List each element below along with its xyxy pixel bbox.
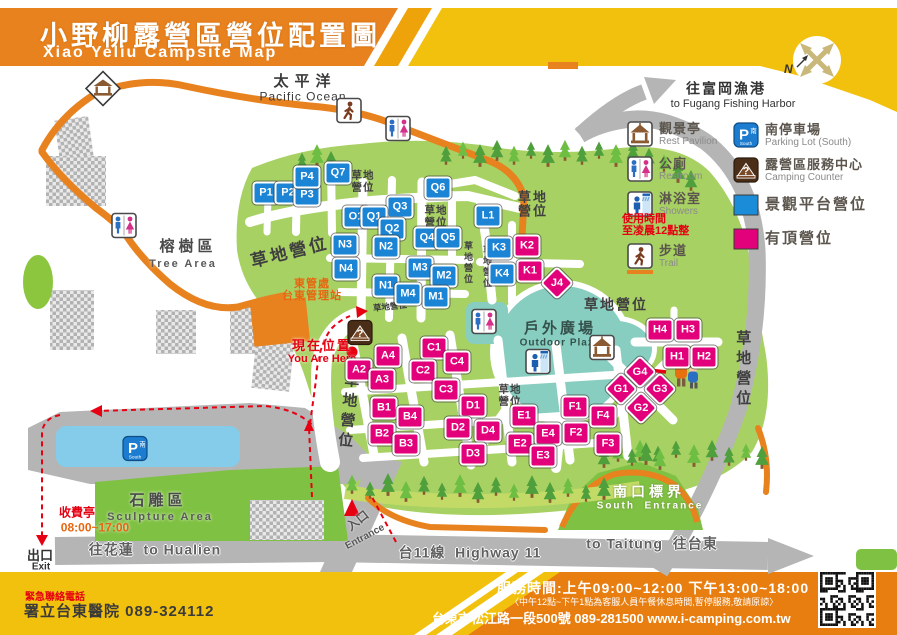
svg-text:South: South — [129, 455, 142, 461]
map-label: to Taitung 往台東 — [586, 536, 717, 551]
site-marker-q6: Q6 — [425, 177, 452, 200]
site-marker-c4: C4 — [444, 351, 471, 374]
map-label: 南口標界 — [613, 484, 685, 499]
svg-text:?: ? — [743, 166, 750, 178]
parking-lot-south — [56, 426, 240, 467]
restroom-icon — [111, 213, 137, 244]
restroom-icon — [471, 309, 497, 340]
lunch-break-note: 〈中午12點~下午1點為客服人員午餐休息時間,暫停服務,敬請原諒〉 — [510, 595, 778, 608]
legend-label-en: Restroom — [659, 171, 702, 182]
legend-item: 公廁Restroom — [627, 156, 702, 187]
pavilion-sign-icon — [81, 67, 125, 116]
trail-icon — [336, 98, 362, 129]
site-marker-l1: L1 — [475, 205, 502, 228]
svg-text:P: P — [739, 127, 749, 144]
legend-item: P南South南停車場Parking Lot (South) — [733, 122, 851, 153]
site-marker-n4: N4 — [333, 258, 360, 281]
svg-text:南: 南 — [139, 440, 146, 449]
map-label: 太平洋 — [273, 74, 336, 91]
map-label: Tree Area — [149, 258, 217, 270]
site-marker-b4: B4 — [397, 406, 424, 429]
site-marker-m4: M4 — [395, 283, 422, 306]
site-marker-e3: E3 — [530, 445, 557, 468]
qr-code — [818, 570, 876, 628]
site-marker-q5: Q5 — [435, 227, 462, 250]
site-marker-k2: K2 — [514, 235, 541, 258]
map-label: Pacific Ocean — [259, 90, 346, 103]
header-accent-dash — [548, 62, 578, 69]
map-label: 草地 營位 — [518, 191, 548, 220]
site-marker-h4: H4 — [647, 319, 674, 342]
site-marker-h3: H3 — [675, 319, 702, 342]
poster-subtitle: Xiao Yeliu Campsite Map — [43, 44, 277, 62]
counter-icon: ? — [347, 320, 373, 351]
site-marker-m2: M2 — [431, 265, 458, 288]
site-marker-f1: F1 — [562, 396, 589, 419]
address-phone-website: 台東市松江路一段500號 089-281500 www.i-camping.co… — [432, 608, 791, 627]
site-marker-a4: A4 — [375, 345, 402, 368]
map-label: 草地營位 — [462, 241, 472, 285]
site-marker-d1: D1 — [460, 395, 487, 418]
site-marker-e1: E1 — [511, 405, 538, 428]
legend-label-zh: 公廁 — [659, 156, 702, 171]
pavilion-icon — [589, 335, 615, 366]
svg-text:南: 南 — [750, 126, 757, 135]
site-marker-h2: H2 — [691, 346, 718, 369]
svg-text:South: South — [740, 141, 753, 147]
site-marker-m1: M1 — [423, 286, 450, 309]
legend-item: ?露營區服務中心Camping Counter — [733, 157, 863, 188]
site-marker-f4: F4 — [590, 405, 617, 428]
site-marker-b3: B3 — [393, 433, 420, 456]
site-marker-n2: N2 — [373, 236, 400, 259]
pink-site-swatch — [733, 228, 759, 255]
site-marker-h1: H1 — [664, 346, 691, 369]
restroom-icon — [385, 116, 411, 147]
map-label: 榕樹區 — [159, 239, 216, 256]
site-marker-f3: F3 — [595, 433, 622, 456]
shower-icon — [525, 349, 551, 380]
map-label: 往富岡漁港 — [686, 81, 766, 96]
counter-icon: ? — [733, 157, 759, 188]
green-patch — [856, 549, 897, 570]
site-marker-d4: D4 — [475, 420, 502, 443]
pavilion-icon — [627, 121, 653, 152]
svg-text:?: ? — [357, 328, 364, 340]
parking-icon: P南South — [122, 436, 148, 467]
map-label: 草地 營位 — [352, 170, 375, 193]
map-label: 石雕區 — [129, 493, 186, 510]
green-patch — [23, 255, 53, 309]
map-label: to Fugang Fishing Harbor — [671, 98, 796, 110]
svg-text:P: P — [128, 440, 138, 457]
site-marker-e4: E4 — [535, 423, 562, 446]
site-marker-q3: Q3 — [387, 196, 414, 219]
site-marker-c3: C3 — [433, 379, 460, 402]
hospital-phone: 署立台東醫院 089-324112 — [24, 600, 214, 621]
to-taitung-arrow — [768, 538, 814, 574]
site-marker-k4: K4 — [489, 263, 516, 286]
legend-label-zh: 露營區服務中心 — [765, 157, 863, 172]
legend-label-zh: 淋浴室 — [659, 191, 701, 206]
legend-label-en: Trail — [659, 258, 687, 269]
map-label: 草地 營位 — [425, 205, 448, 228]
sculpture-texture — [250, 500, 324, 540]
compass-north-label: N — [784, 62, 793, 76]
site-marker-d3: D3 — [460, 443, 487, 466]
site-marker-n3: N3 — [332, 234, 359, 257]
campsite-map-poster: 太平洋Pacific Ocean往富岡漁港to Fugang Fishing H… — [0, 0, 897, 635]
map-label: 戶外廣場 — [524, 321, 596, 338]
map-label: Exit — [32, 562, 50, 573]
legend-label-en: Rest Pavilion — [659, 136, 717, 147]
site-marker-p4: P4 — [294, 166, 321, 189]
site-marker-f2: F2 — [563, 422, 590, 445]
trail-underline — [627, 270, 653, 274]
legend-label-zh: 步道 — [659, 243, 687, 258]
site-marker-q7: Q7 — [325, 162, 352, 185]
legend-item: 有頂營位 — [733, 228, 833, 255]
map-label: 台11線 Highway 11 — [399, 545, 542, 560]
site-marker-b1: B1 — [371, 397, 398, 420]
map-label: 往花蓮 to Hualien — [89, 542, 221, 557]
site-marker-d2: D2 — [445, 417, 472, 440]
map-label: 草地營位 — [734, 330, 751, 410]
legend-label-zh: 有頂營位 — [765, 228, 833, 250]
map-label: 08:00~17:00 — [61, 521, 129, 534]
parking-icon: P南South — [733, 122, 759, 153]
legend-item: 觀景亭Rest Pavilion — [627, 121, 717, 152]
legend-label-en: Camping Counter — [765, 172, 863, 183]
map-label: 草地營位 — [584, 297, 648, 312]
restroom-icon — [627, 156, 653, 187]
shower-hours-note: 使用時間 至凌晨12點整 — [622, 213, 689, 237]
legend-label-zh: 南停車場 — [765, 122, 851, 137]
site-marker-a3: A3 — [369, 369, 396, 392]
map-label: 東管處 台東管理站 — [282, 278, 342, 302]
map-label: 現在位置 — [292, 339, 352, 353]
legend-label-en: Parking Lot (South) — [765, 137, 851, 148]
map-label: 收費亭 — [59, 506, 95, 519]
blue-site-swatch — [733, 194, 759, 221]
legend-item: 景觀平台營位 — [733, 194, 867, 221]
site-marker-m3: M3 — [407, 257, 434, 280]
legend-label-zh: 景觀平台營位 — [765, 194, 867, 216]
legend-label-zh: 觀景亭 — [659, 121, 717, 136]
site-marker-k3: K3 — [486, 237, 513, 260]
map-label: South Entrance — [597, 501, 704, 512]
site-marker-k1: K1 — [517, 260, 544, 283]
compass-icon — [793, 36, 841, 84]
site-marker-b2: B2 — [369, 423, 396, 446]
